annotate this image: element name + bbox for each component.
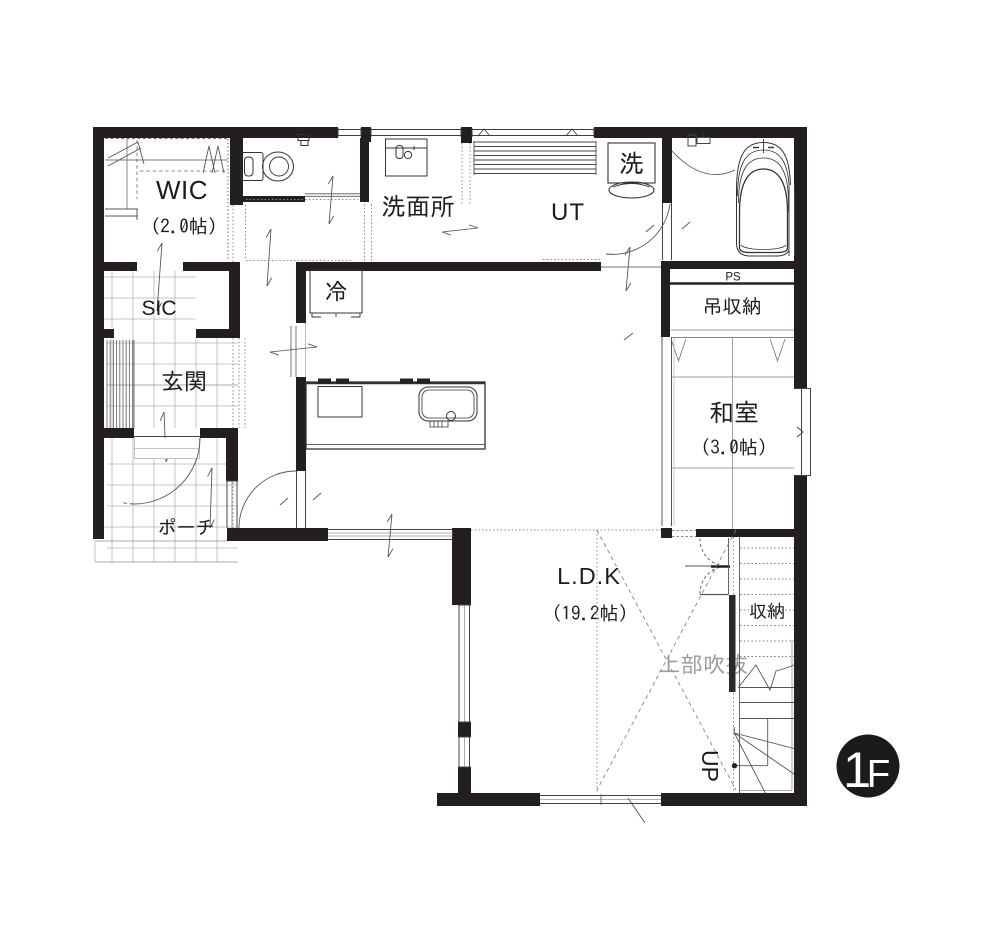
svg-text:SIC: SIC [141, 297, 176, 320]
svg-text:PS: PS [725, 272, 741, 284]
svg-text:UP: UP [697, 750, 723, 782]
svg-text:UT: UT [551, 199, 585, 226]
svg-text:WIC: WIC [156, 175, 208, 205]
svg-text:F: F [867, 753, 891, 796]
svg-text:L.D.K: L.D.K [557, 563, 621, 589]
